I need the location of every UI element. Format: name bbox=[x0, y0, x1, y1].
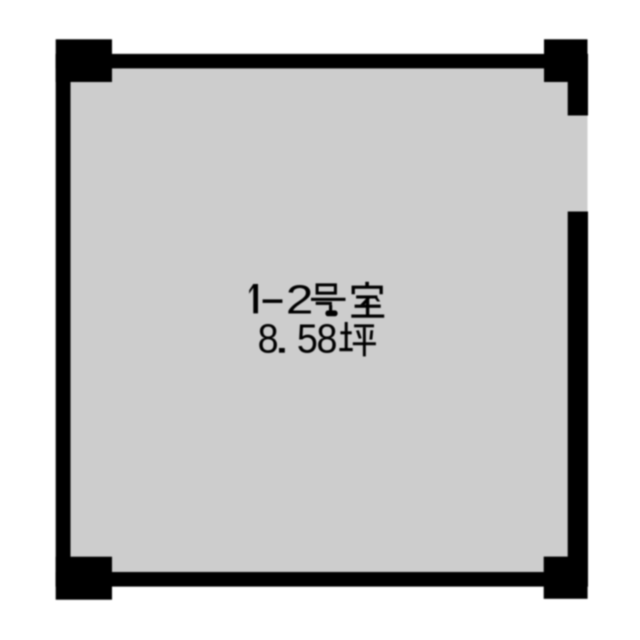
svg-text:5: 5 bbox=[297, 315, 318, 361]
svg-text:8: 8 bbox=[317, 315, 338, 361]
svg-text:8: 8 bbox=[258, 315, 279, 361]
